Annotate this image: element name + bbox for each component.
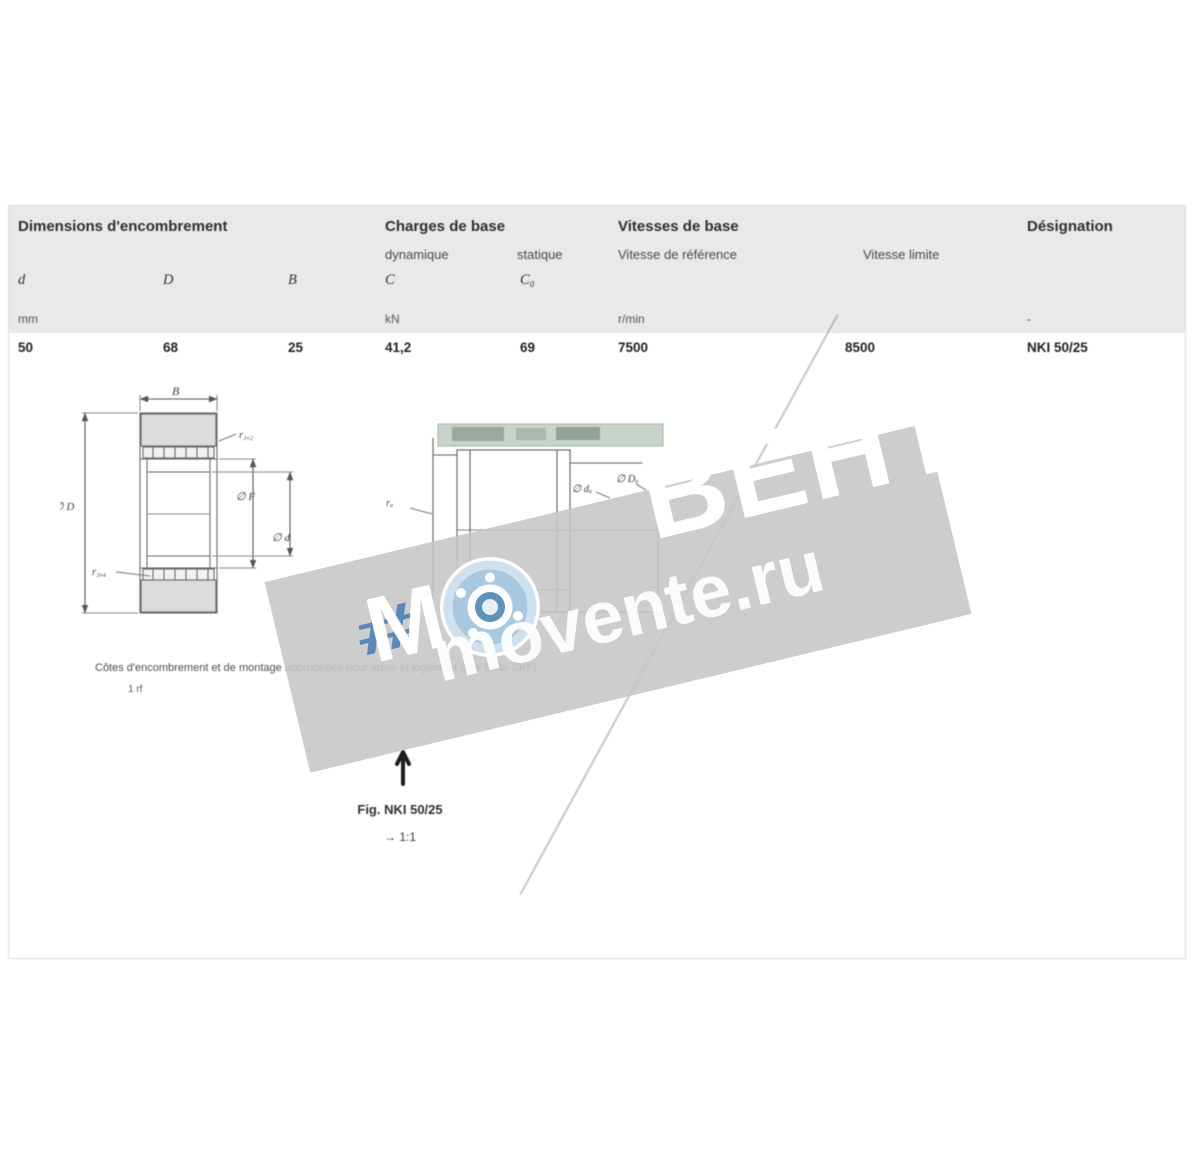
label-dim-d: ∅ d: [272, 532, 290, 544]
label-dim-B: B: [172, 384, 180, 398]
header-dimensions: Dimensions d'encombrement: [18, 218, 227, 235]
symbol-B: B: [288, 272, 297, 289]
symbol-D: D: [163, 272, 173, 289]
label-dim-D: ∅ D: [60, 501, 74, 513]
subheader-lim-speed: Vitesse limite: [863, 247, 939, 262]
symbol-C0: C₀: [520, 272, 535, 289]
cell-static-load: 69: [520, 340, 535, 355]
subheader-ref-speed: Vitesse de référence: [618, 247, 737, 262]
cell-designation: NKI 50/25: [1027, 340, 1088, 355]
figure-note-line2: → 1:1: [335, 830, 465, 844]
label-Da: ∅ Dₐ: [616, 474, 638, 485]
label-r34: r₃,₄: [92, 567, 106, 578]
page-border-right: [1185, 205, 1186, 958]
caption-footnote: 1 rf: [128, 684, 142, 695]
symbol-d: d: [18, 272, 25, 289]
header-basic-loads: Charges de base: [385, 218, 505, 235]
cell-reference-speed: 7500: [618, 340, 648, 355]
cell-limiting-speed: 8500: [845, 340, 875, 355]
cell-outer-diameter: 68: [163, 340, 178, 355]
section-view-drawing: [82, 395, 293, 613]
cell-dynamic-load: 41,2: [385, 340, 411, 355]
unit-kn: kN: [385, 312, 400, 326]
cell-bore-diameter: 50: [18, 340, 33, 355]
header-speeds: Vitesses de base: [618, 218, 739, 235]
unit-dash: -: [1027, 312, 1031, 326]
symbol-C: C: [385, 272, 395, 289]
label-ra: rₐ: [386, 498, 393, 509]
figure-note-line1: Fig. NKI 50/25: [335, 802, 465, 817]
cell-width: 25: [288, 340, 303, 355]
label-da: ∅ dₐ: [572, 484, 592, 495]
page-border-left: [8, 205, 9, 958]
subheader-static: statique: [517, 247, 563, 262]
unit-mm: mm: [18, 312, 38, 326]
label-dim-F: ∅ F: [236, 491, 255, 503]
label-r12: r₁,₂: [239, 430, 253, 441]
header-designation: Désignation: [1027, 218, 1113, 235]
unit-speed: r/min: [618, 312, 645, 326]
page-border-bottom: [8, 958, 1186, 959]
subheader-dynamic: dynamique: [385, 247, 449, 262]
